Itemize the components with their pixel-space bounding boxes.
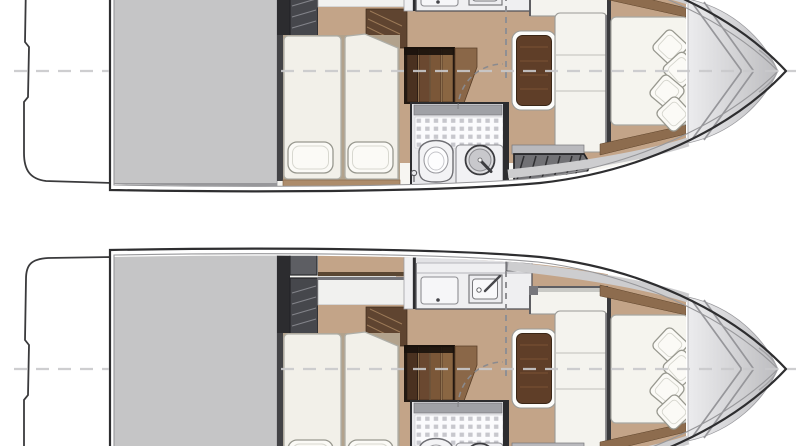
screenshot-root	[0, 0, 800, 446]
floorplan-bottom	[14, 249, 796, 446]
floorplan-top	[14, 0, 796, 191]
yacht-floorplans-image	[0, 0, 800, 446]
